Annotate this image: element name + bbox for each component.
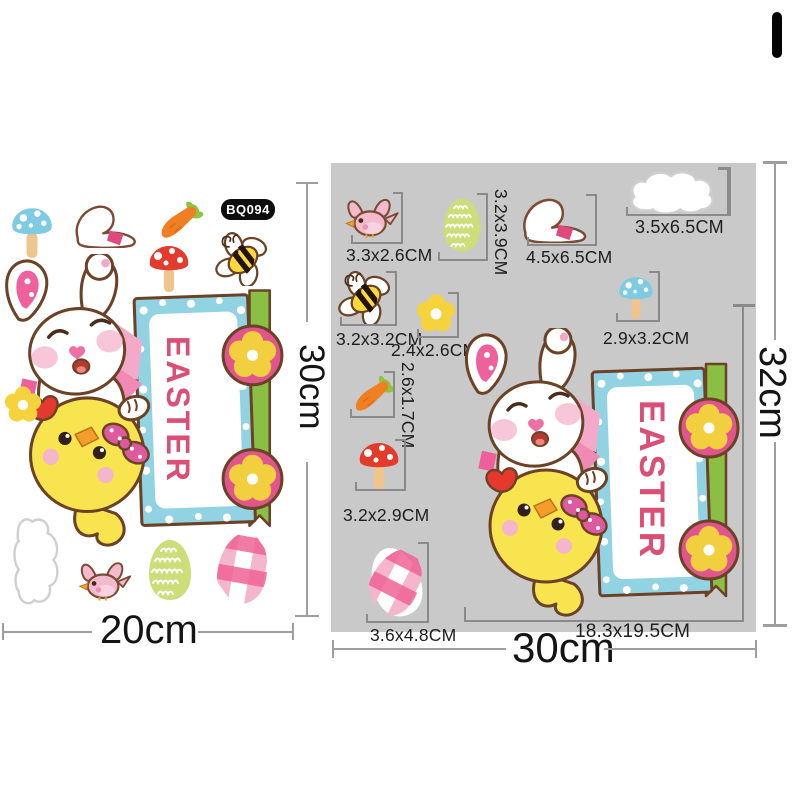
dim-cap	[417, 329, 419, 338]
dim-line	[595, 194, 597, 246]
blue-mushroom-icon	[8, 205, 56, 261]
dim-cap	[355, 482, 357, 491]
sheet-height-label: 30cm	[291, 344, 331, 430]
bunny-slipper-icon	[520, 197, 592, 243]
pink-bird-icon	[76, 556, 132, 602]
height-line-upper	[306, 184, 308, 322]
width-line-right	[198, 631, 292, 633]
dim-cap	[616, 313, 618, 322]
dim-cap	[351, 235, 353, 244]
dim-line	[427, 542, 429, 623]
width-line-left	[4, 631, 92, 633]
size-label-cloud: 3.5x6.5CM	[635, 217, 724, 238]
dim-line	[340, 324, 397, 326]
dim-line	[404, 439, 406, 491]
dim-cap	[350, 409, 352, 418]
size-label-carrot: 2.6x1.7CM	[397, 362, 418, 448]
dim-line	[393, 371, 395, 418]
height-line-lower	[774, 442, 776, 624]
red-mushroom-icon	[356, 440, 402, 492]
dim-line	[438, 259, 488, 261]
dim-line	[401, 192, 403, 244]
size-label-green-egg: 3.2x3.9CM	[490, 189, 511, 275]
easter-sign-text-right: EASTER	[634, 400, 669, 568]
panel-width-label: 30cm	[512, 624, 615, 672]
product-dimension-image: BQ094 EASTER 30cm 20cm 3.3x2.6CM	[0, 0, 800, 800]
easter-sign-text-left: EASTER	[162, 336, 194, 494]
height-line-cap-bottom	[295, 615, 319, 617]
size-label-red-mushroom: 3.2x2.9CM	[343, 505, 429, 526]
dim-line	[742, 306, 744, 622]
carrot-icon	[352, 374, 394, 416]
dim-cap	[366, 614, 368, 623]
bee-icon	[338, 270, 394, 326]
width-line-right	[604, 648, 756, 650]
dim-line	[658, 271, 660, 322]
dim-cap	[733, 304, 755, 307]
product-code-badge: BQ094	[221, 199, 275, 220]
dim-line	[527, 244, 597, 246]
green-egg-icon	[440, 194, 484, 256]
dim-line	[616, 320, 660, 322]
width-line-left	[334, 648, 506, 650]
dim-cap	[340, 317, 342, 326]
bunny-slipper-icon	[70, 204, 144, 248]
green-egg-icon	[144, 538, 196, 602]
cloud-icon	[621, 168, 721, 214]
dim-cap	[527, 237, 529, 246]
width-line-tick-right	[292, 623, 294, 640]
dim-cap	[626, 207, 628, 216]
cloud-icon	[13, 512, 63, 608]
dim-line	[351, 242, 403, 244]
width-line-tick-right	[755, 640, 757, 658]
pink-bird-icon	[342, 193, 400, 239]
easter-bunny-chick-sign-graphic	[452, 328, 744, 620]
dim-line	[366, 621, 429, 623]
blue-mushroom-icon	[616, 273, 656, 323]
dim-line	[486, 193, 488, 259]
size-label-bunny-slipper: 4.5x6.5CM	[526, 247, 612, 268]
height-line-lower	[306, 462, 308, 615]
carrot-icon	[156, 202, 204, 240]
easter-bunny-chick-sign-graphic	[0, 254, 288, 550]
height-line-upper	[774, 164, 776, 340]
dim-line	[727, 167, 731, 216]
size-label-pink-bird: 3.3x2.6CM	[346, 245, 432, 266]
dim-line	[395, 271, 397, 326]
yellow-flower-icon	[416, 294, 456, 334]
height-line-cap-bottom	[763, 624, 787, 627]
panel-height-label: 32cm	[750, 346, 793, 439]
size-label-pink-plaid-egg: 3.6x4.8CM	[370, 625, 456, 646]
sheet-width-label: 20cm	[100, 608, 198, 653]
dim-cap	[438, 252, 440, 261]
topright-marker-bar	[772, 12, 782, 58]
dim-line	[355, 489, 406, 491]
dim-line	[350, 416, 395, 418]
dim-line	[626, 214, 731, 216]
yellow-flower-icon	[4, 386, 42, 424]
